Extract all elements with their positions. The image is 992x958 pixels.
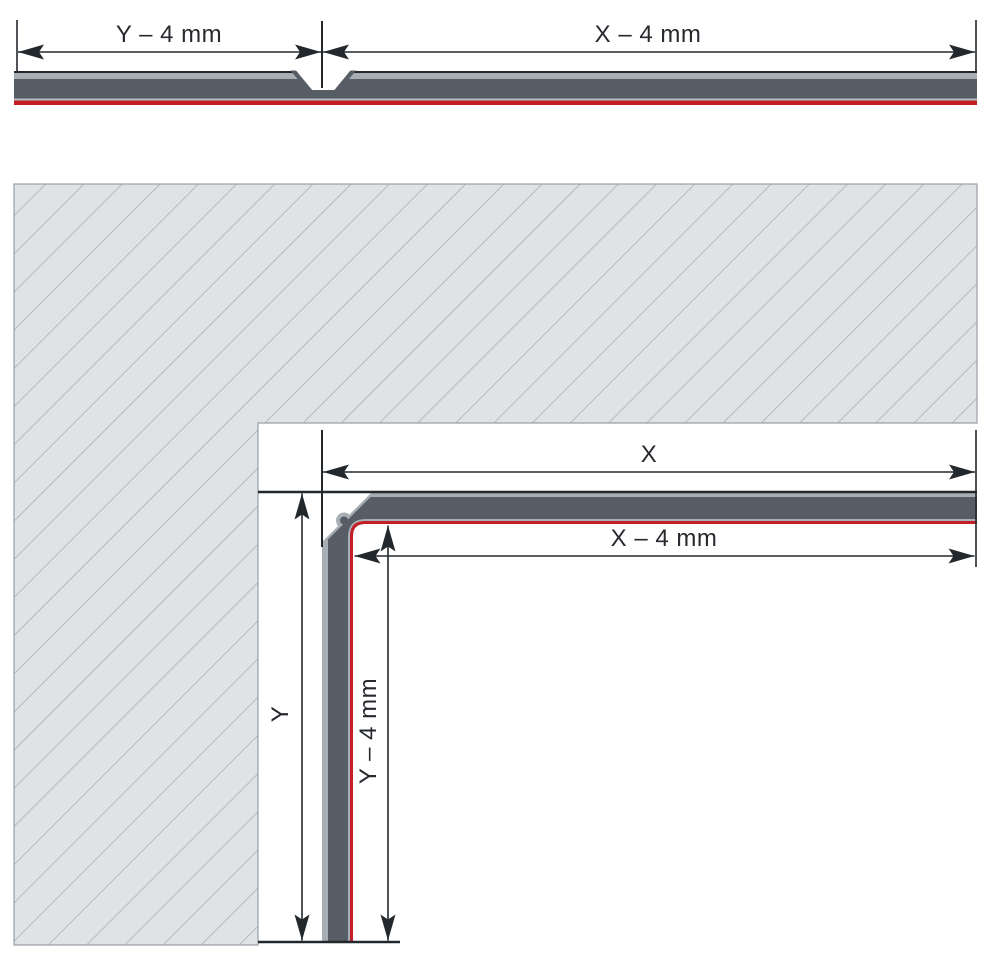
dim-label-y-minus: Y – 4 mm [355,678,382,784]
fold-bulge-core [340,517,348,525]
panel-core [14,79,977,99]
panel-red-face [14,101,977,106]
panel-folding-diagram: Y – 4 mm X – 4 mm X X – 4 mm Y Y – 4 mm [0,0,992,958]
top-cross-section [14,71,977,106]
panel-top-edge-line [14,71,977,73]
diagram-canvas: Y – 4 mm X – 4 mm X X – 4 mm Y Y – 4 mm [0,0,992,958]
dim-label-x-minus-top: X – 4 mm [595,21,702,48]
panel-outer-skin [14,73,977,79]
dim-label-y: Y [267,706,294,723]
panel-inner-skin [14,99,977,101]
dim-label-x-minus: X – 4 mm [611,525,718,552]
dim-label-x: X [641,441,658,468]
dim-label-y-minus-top: Y – 4 mm [116,21,222,48]
